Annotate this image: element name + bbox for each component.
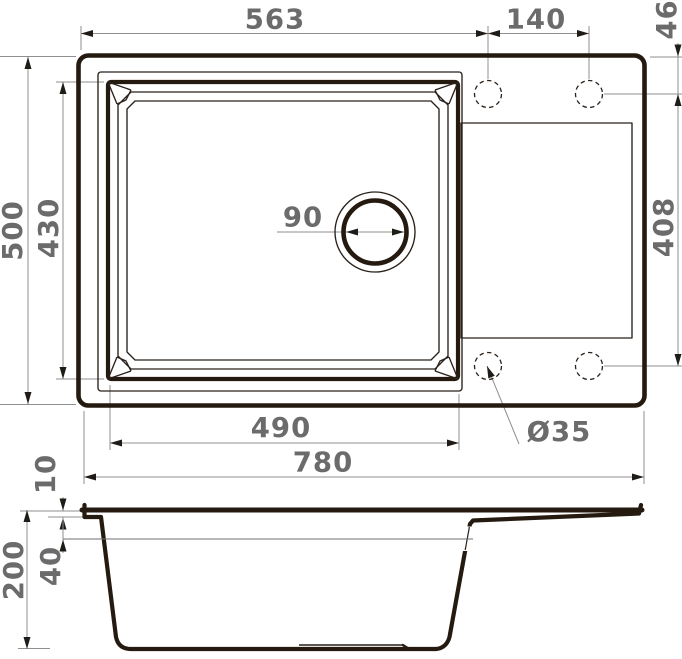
bowl-corner-facet-top-left	[108, 82, 131, 104]
dim-label-200: 200	[0, 540, 30, 600]
bowl-corner-facet-bottom-right	[435, 357, 458, 379]
dim-label-490: 490	[251, 412, 311, 444]
dim-label-430: 430	[33, 198, 65, 258]
tap-hole-top-right	[576, 81, 603, 108]
sink-outer-edge	[79, 56, 645, 406]
dim-label-hole-diameter: Ø35	[527, 416, 592, 448]
top-view	[79, 56, 645, 406]
drawing-canvas: 563 140 46 500 430 90 408 490 Ø35 780 10…	[0, 0, 682, 659]
dim-label-90: 90	[283, 202, 323, 234]
dim-label-10: 10	[30, 454, 62, 494]
tap-hole-top-left	[475, 81, 502, 108]
dim-label-780: 780	[293, 447, 353, 479]
section-view	[63, 505, 642, 650]
bowl-corner-facet-top-right	[435, 82, 458, 104]
tap-hole-bottom-right	[576, 353, 603, 380]
dim-label-500: 500	[0, 200, 29, 260]
extension-lines	[0, 26, 682, 649]
drainboard-panel	[461, 123, 632, 338]
dim-label-140: 140	[506, 4, 566, 36]
sink-technical-drawing: 563 140 46 500 430 90 408 490 Ø35 780 10…	[0, 0, 682, 659]
dim-label-40: 40	[35, 546, 67, 586]
tap-hole-bottom-left	[475, 353, 502, 380]
section-body-outline	[85, 505, 642, 649]
bowl-corner-facet-bottom-left	[108, 357, 131, 379]
dim-label-46: 46	[651, 0, 682, 40]
dimension-lines	[27, 34, 678, 650]
dim-label-563: 563	[245, 4, 305, 36]
dim-label-408: 408	[648, 197, 680, 257]
